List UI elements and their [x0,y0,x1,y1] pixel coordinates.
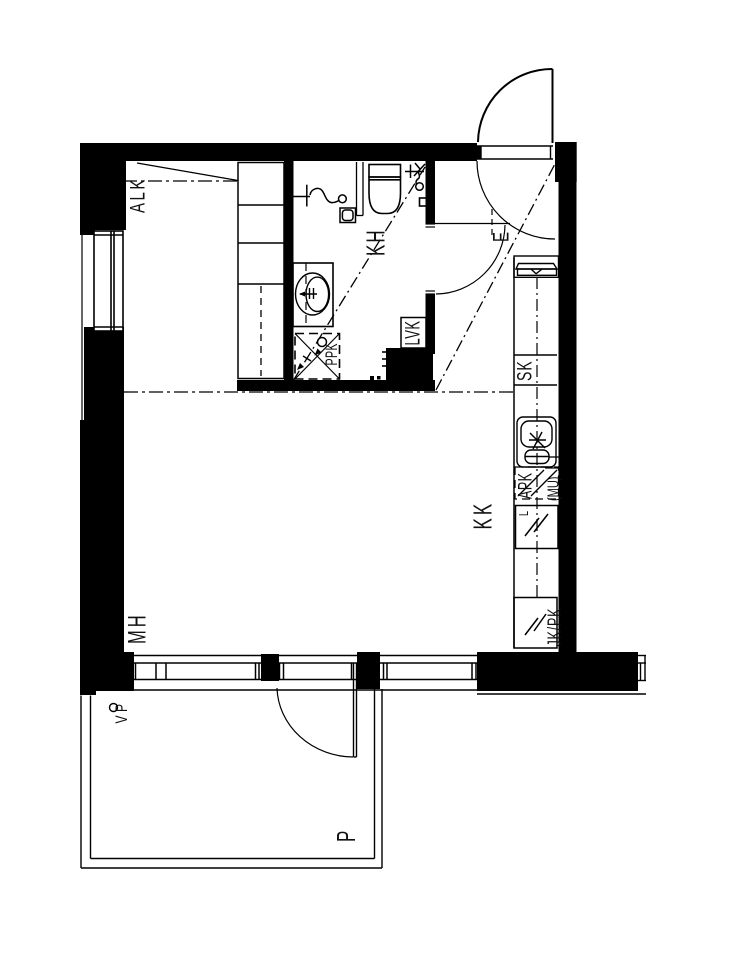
svg-text:JK/PK: JK/PK [545,608,565,647]
svg-text:KK: KK [468,501,498,530]
svg-text:ALK: ALK [125,177,149,213]
svg-text:KH: KH [361,228,391,256]
svg-text:SK: SK [511,360,536,381]
svg-text:PPK: PPK [323,343,341,366]
svg-text:APK: APK [515,472,536,499]
svg-text:LVK: LVK [400,320,424,345]
svg-text:MH: MH [124,612,151,644]
svg-text:L: L [518,511,532,516]
svg-text:P: P [331,831,361,842]
svg-text:(MU): (MU) [545,477,562,501]
